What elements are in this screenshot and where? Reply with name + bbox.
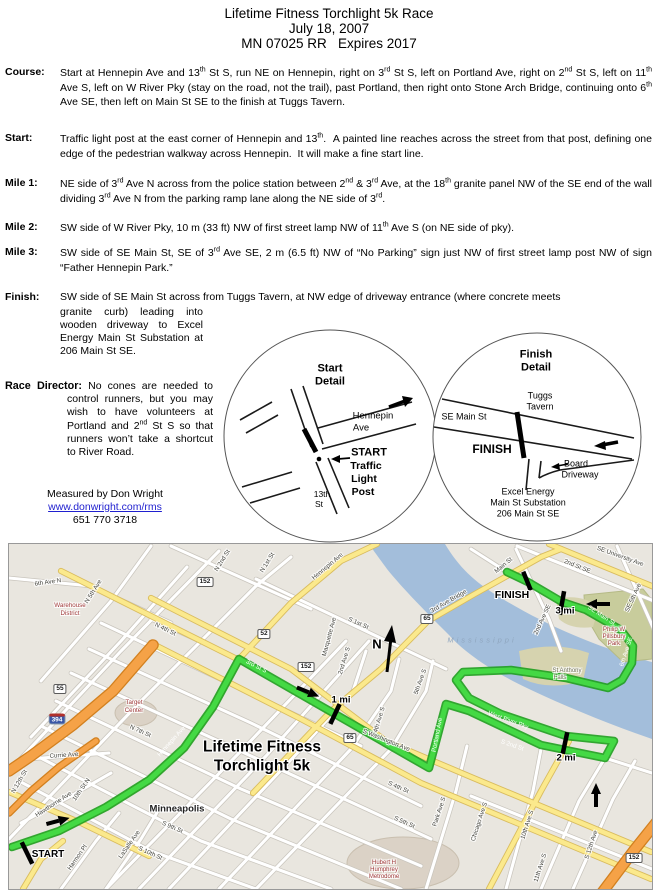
hennepin-ave-label: Hennepin [353, 411, 394, 421]
section-text: Traffic light post at the east corner of… [60, 132, 652, 161]
section-label: Mile 1: [5, 177, 38, 189]
section-label: Mile 3: [5, 246, 38, 258]
start-callout: Post [352, 487, 375, 498]
finish-detail-title: Detail [521, 363, 551, 374]
finish-callout: FINISH [472, 443, 511, 455]
driveway-pointer-arrow [551, 463, 560, 470]
section-text: NE side of 3rd Ave N across from the pol… [60, 177, 652, 206]
board-driveway-label: Board [564, 460, 588, 469]
traffic-light-post-dot [317, 457, 322, 462]
se-main-st-label: SE Main St [441, 413, 486, 422]
course-map [8, 543, 653, 890]
start-callout: Light [351, 474, 377, 485]
section-label: Finish: [5, 291, 39, 303]
hennepin-ave-label: Ave [353, 423, 369, 433]
measurement-credit: Measured by Don Wright www.donwright.com… [25, 488, 185, 527]
section-label: Mile 2: [5, 221, 38, 233]
section-text: SW side of W River Pky, 10 m (33 ft) NW … [60, 221, 652, 236]
race-course-document: Lifetime Fitness Torchlight 5k Race July… [0, 0, 658, 893]
tuggs-tavern-label: Tuggs [528, 392, 553, 401]
donwright-link[interactable]: www.donwright.com/rms [48, 501, 162, 513]
street-13th-label: 13th [314, 490, 331, 499]
section-label: Start: [5, 132, 32, 144]
start-detail-circle [224, 330, 436, 542]
phone-number: 651 770 3718 [25, 514, 185, 527]
tuggs-tavern-label: Tavern [526, 403, 553, 412]
hennepin-direction-arrow [402, 396, 413, 407]
finish-detail-roads [434, 399, 634, 490]
finish-line-mark [517, 412, 618, 470]
section-label: Course: [5, 66, 45, 78]
metrodome-area [347, 837, 459, 889]
finish-detail-circle [433, 333, 641, 541]
measured-by: Measured by Don Wright [25, 488, 185, 501]
finish-text-wide: SW side of SE Main St across from Tuggs … [60, 291, 652, 303]
page-title: Lifetime Fitness Torchlight 5k Race [0, 6, 658, 21]
finish-text-narrow: granite curb) leading into wooden drivew… [60, 306, 203, 358]
start-detail-title: Start [317, 364, 342, 375]
board-driveway-label: Driveway [561, 471, 598, 480]
start-line-mark [304, 396, 413, 463]
mainst-direction-arrow [594, 441, 606, 450]
race-director-label: Race Director: [5, 380, 82, 392]
race-date: July 18, 2007 [0, 21, 658, 36]
start-callout: Traffic [350, 461, 382, 472]
excel-energy-label: Excel Energy [501, 488, 554, 497]
section-text: Start at Hennepin Ave and 13th St S, run… [60, 66, 652, 110]
start-callout: START [351, 448, 387, 459]
section-text: SW side of SE Main St, SE of 3rd Ave SE,… [60, 246, 652, 275]
start-detail-title: Detail [315, 377, 345, 388]
finish-detail-title: Finish [520, 350, 552, 361]
start-detail-roads [240, 386, 416, 514]
street-13th-label: St [315, 500, 323, 509]
race-director-note: Race Director: No cones are needed to co… [5, 380, 213, 459]
excel-energy-label: 206 Main St SE [497, 510, 560, 519]
start-pointer-arrow [331, 455, 340, 463]
excel-energy-label: Main St Substation [490, 499, 566, 508]
certification-id: MN 07025 RR Expires 2017 [0, 36, 658, 51]
race-director-text: No cones are needed to control runners, … [67, 380, 213, 458]
